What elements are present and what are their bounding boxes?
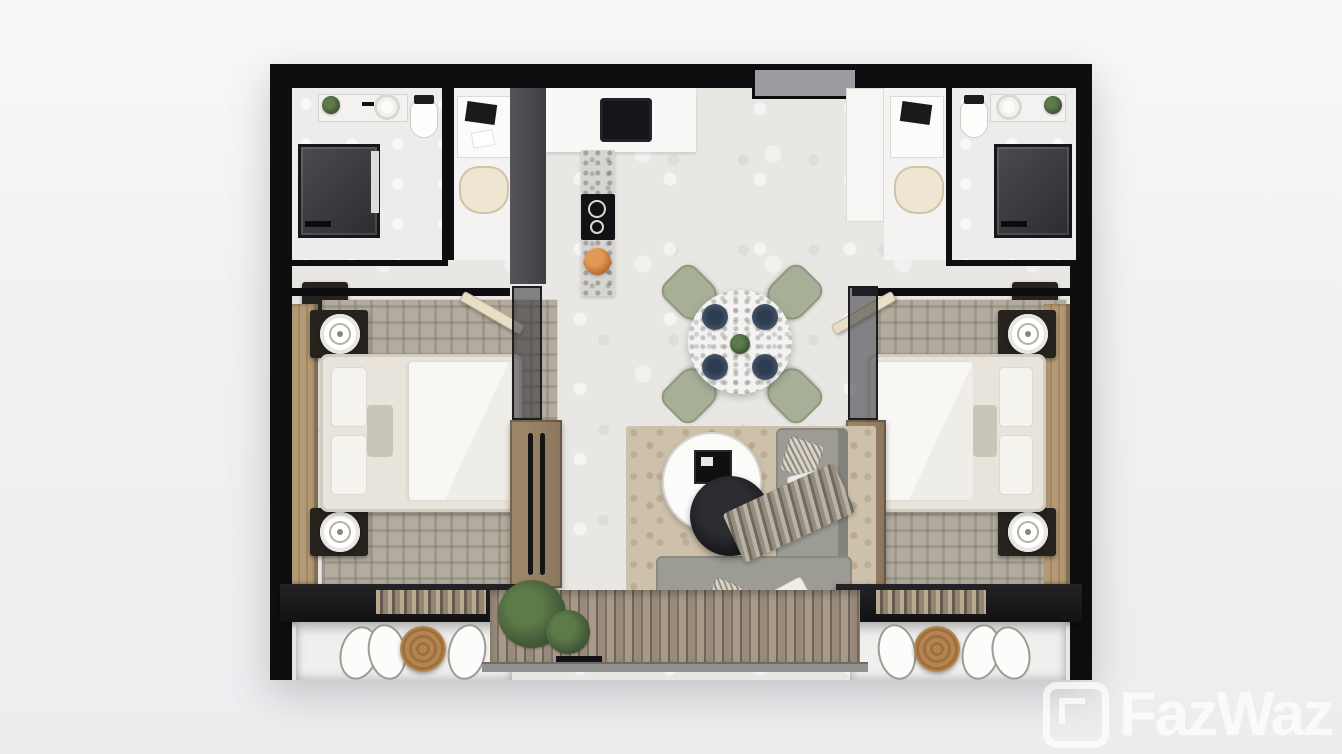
closet-interior — [296, 622, 512, 680]
glass-partition-left — [512, 286, 542, 420]
scarves — [876, 590, 986, 614]
centerpiece-plant-icon — [730, 334, 750, 354]
dining-table — [688, 290, 792, 394]
desk-nook-right — [884, 88, 946, 260]
plate-icon — [752, 354, 778, 380]
scarves — [376, 590, 486, 614]
plate-icon — [752, 304, 778, 330]
duvet — [409, 362, 511, 500]
woven-basket — [914, 626, 960, 672]
closet-interior — [850, 622, 1066, 680]
plant-icon — [1044, 96, 1062, 114]
glass-partition-right — [848, 286, 878, 420]
floor-plan — [270, 64, 1092, 680]
sink-round-left — [374, 94, 400, 120]
toilet-right — [960, 100, 988, 138]
cooktop-icon — [581, 194, 615, 240]
toilet-left — [410, 100, 438, 138]
table-lamp-icon — [320, 512, 360, 552]
lumbar-pillow — [367, 405, 393, 457]
table-lamp-icon — [1008, 512, 1048, 552]
balcony-railing — [482, 662, 868, 672]
papers-icon — [471, 129, 495, 149]
wall-top — [270, 64, 1092, 88]
watermark-text: FazWaz — [1119, 679, 1332, 750]
entry-door — [752, 67, 858, 99]
dining-area — [670, 272, 810, 412]
divider-wall-left — [510, 88, 546, 284]
laptop-icon — [465, 101, 497, 125]
fruit-bowl-icon — [584, 248, 611, 275]
pillow — [331, 435, 367, 495]
desk-left — [457, 96, 511, 158]
sink-round-right — [996, 94, 1022, 120]
plant-icon — [322, 96, 340, 114]
bed-left — [320, 354, 522, 512]
laptop-icon — [900, 101, 932, 125]
hanging-clothes — [443, 621, 490, 683]
desk-chair-left — [459, 166, 509, 214]
table-lamp-icon — [1008, 314, 1048, 354]
lumbar-pillow — [973, 405, 997, 457]
pillow — [999, 367, 1033, 427]
balcony — [490, 588, 860, 680]
closet-counter — [836, 584, 1082, 622]
bathroom-left — [292, 88, 448, 266]
duvet — [877, 362, 973, 500]
foyer-closet-column — [846, 88, 884, 222]
pillow — [331, 367, 367, 427]
bed-right — [868, 354, 1046, 512]
kitchen-sink — [600, 98, 652, 142]
watermark: FazWaz — [1043, 679, 1332, 750]
fazwaz-logo-icon — [1043, 682, 1109, 748]
faucet-icon — [362, 102, 374, 106]
pillow — [999, 435, 1033, 495]
shower-right — [994, 144, 1072, 238]
desk-chair-right — [894, 166, 944, 214]
desk-nook-left — [448, 88, 516, 260]
table-lamp-icon — [320, 314, 360, 354]
wall-bedroom-left-top — [292, 288, 510, 296]
woven-basket — [400, 626, 446, 672]
desk-right — [890, 96, 944, 158]
plate-icon — [702, 354, 728, 380]
balcony-plant-icon — [546, 610, 590, 654]
plate-icon — [702, 304, 728, 330]
bathroom-right — [946, 88, 1076, 266]
bronze-cabinet-left — [510, 420, 562, 588]
shower-left — [298, 144, 380, 238]
